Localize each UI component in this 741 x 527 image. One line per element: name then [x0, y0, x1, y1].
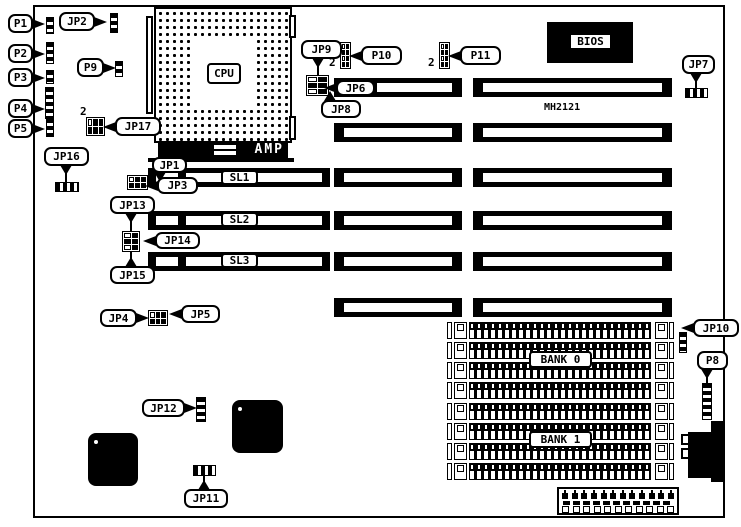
jumper-pin	[342, 62, 345, 67]
jumper-pin	[346, 62, 349, 67]
amp-stripe	[214, 145, 236, 149]
simm-latch	[669, 463, 674, 480]
cpu-socket-tab	[289, 116, 296, 140]
power-pin	[601, 490, 607, 500]
isa-slot-segment	[473, 78, 672, 97]
amp-label: AMP	[255, 143, 284, 157]
p4-pointer	[32, 104, 45, 114]
simm-latch	[447, 443, 452, 460]
power-pin	[591, 490, 597, 500]
jumper-pin	[308, 83, 317, 88]
label-bank-0: BANK 0	[529, 351, 592, 368]
simm-latch	[447, 322, 452, 339]
connector-jp16	[55, 182, 79, 192]
simm-latch	[457, 324, 464, 331]
pin-2-marker: 2	[80, 106, 87, 117]
jumper-pin	[135, 183, 140, 188]
isa-slot-opening	[156, 257, 178, 266]
power-connector	[557, 487, 679, 515]
isa-slot-segment	[473, 168, 672, 187]
callout-jp8: JP8	[321, 100, 361, 118]
simm-socket	[447, 382, 674, 399]
isa-slot-opening	[483, 216, 662, 225]
power-pin	[658, 490, 664, 500]
cpu-socket-lever	[146, 16, 153, 114]
power-pin	[639, 490, 645, 500]
power-slot	[604, 506, 611, 513]
simm-latch	[447, 382, 452, 399]
jumper-pin	[124, 245, 131, 250]
power-slot	[594, 506, 601, 513]
p1-pointer	[32, 19, 45, 29]
ic-chip	[232, 400, 283, 453]
power-slot	[573, 506, 580, 513]
cpu-socket-center: CPU	[191, 38, 257, 109]
simm-latch	[669, 362, 674, 379]
keyboard-din-connector	[679, 419, 725, 483]
power-pin	[668, 490, 674, 500]
power-pin-pad	[620, 493, 626, 499]
isa-slot-opening	[483, 173, 662, 182]
simm-latch	[669, 382, 674, 399]
callout-p8: P8	[697, 351, 728, 370]
jumper-pin	[132, 233, 139, 238]
power-pin-pad	[668, 493, 674, 499]
isa-slot-opening	[377, 83, 452, 92]
callout-jp2: JP2	[59, 12, 95, 31]
simm-latch	[669, 443, 674, 460]
simm-latch	[658, 445, 665, 452]
jumper-pin	[150, 312, 155, 318]
callout-jp11: JP11	[184, 489, 228, 508]
simm-latch	[669, 403, 674, 420]
callout-jp7: JP7	[682, 55, 715, 74]
simm-latch	[658, 465, 665, 472]
connector-p5	[46, 118, 54, 137]
simm-contact-row	[469, 322, 651, 339]
keyboard-connector-notch	[683, 436, 688, 443]
simm-contact-row	[469, 463, 651, 480]
isa-slot-segment	[334, 298, 462, 317]
jumper-pin	[308, 89, 317, 94]
power-slot	[583, 506, 590, 513]
callout-jp3: JP3	[157, 177, 198, 194]
jp12-pointer	[184, 403, 197, 413]
callout-jp4: JP4	[100, 309, 137, 327]
simm-latch	[658, 364, 665, 371]
label-bank-1: BANK 1	[529, 431, 592, 448]
keyboard-connector-tab	[711, 473, 725, 482]
p5-pointer	[32, 124, 45, 134]
power-pin-pad	[639, 493, 645, 499]
power-slot	[562, 506, 569, 513]
jumper-pin	[132, 239, 139, 244]
jumper-pin	[445, 62, 448, 67]
callout-jp6: JP6	[336, 80, 375, 96]
jumper-pin	[161, 312, 166, 318]
jp9-pointer	[312, 58, 324, 68]
connector-p4	[45, 87, 54, 119]
jumper-pin	[441, 56, 444, 61]
simm-latch	[658, 344, 665, 351]
power-pin	[620, 490, 626, 500]
simm-contact-row	[469, 403, 651, 420]
connector-jp7	[685, 88, 708, 98]
isa-slot-opening	[344, 303, 452, 312]
jumper-pin	[445, 44, 448, 49]
chip-pin1-dot	[94, 440, 98, 444]
label-sl3: SL3	[221, 253, 258, 268]
callout-p1: P1	[8, 14, 33, 33]
isa-slot-opening	[483, 303, 662, 312]
jumper-pin	[150, 319, 155, 325]
power-pin-pad	[562, 493, 568, 499]
keyboard-connector-body	[688, 432, 725, 478]
jumper-pin	[88, 119, 92, 126]
jumper-pin	[342, 56, 345, 61]
callout-jp17: JP17	[115, 117, 161, 136]
label-sl2: SL2	[221, 212, 258, 227]
jp16-pointer	[60, 165, 72, 175]
power-slot	[615, 506, 622, 513]
isa-slot-opening	[483, 128, 662, 137]
p2-pointer	[32, 49, 45, 59]
power-pin	[572, 490, 578, 500]
callout-jp16: JP16	[44, 147, 89, 166]
simm-latch	[658, 425, 665, 432]
jumper-pin	[124, 239, 131, 244]
simm-latch	[457, 425, 464, 432]
power-pin-pad	[629, 493, 635, 499]
jumper-pin	[156, 319, 161, 325]
isa-slot-opening	[344, 257, 452, 266]
isa-slot-opening	[344, 216, 452, 225]
simm-socket	[447, 403, 674, 420]
jumper-pin	[318, 77, 327, 82]
simm-latch	[447, 342, 452, 359]
connector-p3	[46, 70, 54, 84]
connector-jp12	[196, 397, 206, 422]
power-pin-pad	[591, 493, 597, 499]
isa-slot-opening	[344, 173, 452, 182]
simm-latch	[457, 364, 464, 371]
isa-slot-opening	[344, 128, 452, 137]
isa-slot-opening	[156, 216, 178, 225]
connector-p8	[702, 383, 712, 420]
power-pin-pad	[572, 493, 578, 499]
jumper-pin	[342, 50, 345, 55]
chip-pin1-dot	[238, 407, 242, 411]
connector-jp4	[148, 310, 168, 326]
simm-latch	[447, 362, 452, 379]
simm-latch	[457, 445, 464, 452]
simm-latch	[457, 465, 464, 472]
simm-latch	[447, 463, 452, 480]
amp-stripe	[214, 151, 236, 155]
isa-slot-segment	[334, 123, 462, 142]
p8-pointer	[701, 369, 713, 379]
simm-latch	[447, 403, 452, 420]
jumper-pin	[441, 44, 444, 49]
cpu-socket: CPU	[154, 7, 292, 143]
power-connector-divider	[563, 501, 673, 505]
callout-jp12: JP12	[142, 399, 185, 417]
jumper-pin	[161, 319, 166, 325]
jumper-pin	[93, 127, 97, 134]
power-connector-pins	[562, 490, 674, 500]
jumper-pin	[129, 183, 134, 188]
pin-2-marker: 2	[428, 57, 435, 68]
callout-p3: P3	[8, 68, 33, 87]
jp7-pointer	[690, 73, 702, 83]
power-pin-pad	[610, 493, 616, 499]
callout-jp9: JP9	[301, 40, 342, 59]
callout-p4: P4	[8, 99, 33, 118]
callout-jp13: JP13	[110, 196, 155, 214]
p9-pointer	[103, 63, 116, 73]
connector-p1	[46, 17, 54, 34]
simm-latch	[658, 324, 665, 331]
connector-jp13	[122, 231, 140, 252]
isa-slot-opening	[483, 257, 662, 266]
callout-p5: P5	[8, 119, 33, 138]
power-pin	[581, 490, 587, 500]
connector-jp2	[110, 13, 118, 33]
callout-jp5: JP5	[181, 305, 220, 323]
jp13-pointer	[125, 213, 137, 223]
power-pin-pad	[649, 493, 655, 499]
bios-label: BIOS	[569, 33, 612, 50]
jumper-pin	[93, 119, 97, 126]
jumper-pin	[441, 62, 444, 67]
power-slot	[657, 506, 664, 513]
jumper-pin	[308, 77, 317, 82]
isa-slot-segment	[334, 168, 462, 187]
power-pin	[562, 490, 568, 500]
jumper-pin	[129, 177, 134, 182]
power-pin-pad	[601, 493, 607, 499]
simm-socket	[447, 322, 674, 339]
p3-pointer	[32, 73, 45, 83]
simm-latch	[669, 342, 674, 359]
power-pin	[649, 490, 655, 500]
keyboard-connector-notch	[683, 450, 688, 457]
simm-latch	[457, 384, 464, 391]
callout-p2: P2	[8, 44, 33, 63]
simm-latch	[457, 344, 464, 351]
simm-latch	[658, 405, 665, 412]
bios-chip: BIOS	[547, 22, 633, 63]
isa-slot-segment	[473, 298, 672, 317]
callout-p11: P11	[460, 46, 501, 65]
jumper-pin	[156, 312, 161, 318]
power-pin	[610, 490, 616, 500]
isa-slot-segment	[334, 211, 462, 230]
isa-slot-segment	[334, 252, 462, 271]
isa-slot-segment	[473, 211, 672, 230]
connector-p9	[115, 61, 123, 77]
jumper-pin	[342, 44, 345, 49]
keyboard-connector-tab	[711, 421, 725, 433]
jumper-pin	[132, 245, 139, 250]
label-sl1: SL1	[221, 170, 258, 185]
power-pin-pad	[658, 493, 664, 499]
ic-chip	[88, 433, 138, 486]
connector-p2	[46, 42, 54, 64]
callout-jp1: JP1	[152, 157, 187, 173]
simm-latch	[669, 322, 674, 339]
power-pin-pad	[581, 493, 587, 499]
motherboard-diagram: CPU AMP BIOS P1JP2P2P9P3P4P5JP17JP16JP1J…	[0, 0, 741, 527]
amp-connector: AMP	[158, 142, 288, 158]
power-pin	[629, 490, 635, 500]
model-text: MH2121	[544, 103, 580, 113]
jumper-pin	[346, 44, 349, 49]
cpu-label: CPU	[207, 63, 241, 84]
callout-jp14: JP14	[155, 232, 200, 249]
power-slot	[667, 506, 674, 513]
power-slot	[636, 506, 643, 513]
simm-latch	[447, 423, 452, 440]
callout-p9: P9	[77, 58, 104, 77]
callout-jp15: JP15	[110, 266, 155, 284]
jumper-pin	[88, 127, 92, 134]
jumper-pin	[135, 177, 140, 182]
jumper-pin	[441, 50, 444, 55]
simm-contact-row	[469, 382, 651, 399]
power-slot	[625, 506, 632, 513]
power-connector-slots	[562, 506, 674, 513]
connector-jp10	[679, 332, 687, 353]
isa-slot-segment	[473, 123, 672, 142]
callout-jp10: JP10	[693, 319, 739, 337]
cpu-socket-tab	[289, 15, 296, 38]
isa-slot-segment	[473, 252, 672, 271]
jumper-pin	[124, 233, 131, 238]
simm-latch	[457, 405, 464, 412]
jp4-pointer	[136, 313, 149, 323]
power-slot	[646, 506, 653, 513]
isa-slot-opening	[483, 83, 662, 92]
simm-socket	[447, 463, 674, 480]
simm-latch	[669, 423, 674, 440]
callout-p10: P10	[361, 46, 402, 65]
jp2-pointer	[94, 17, 107, 27]
simm-latch	[658, 384, 665, 391]
